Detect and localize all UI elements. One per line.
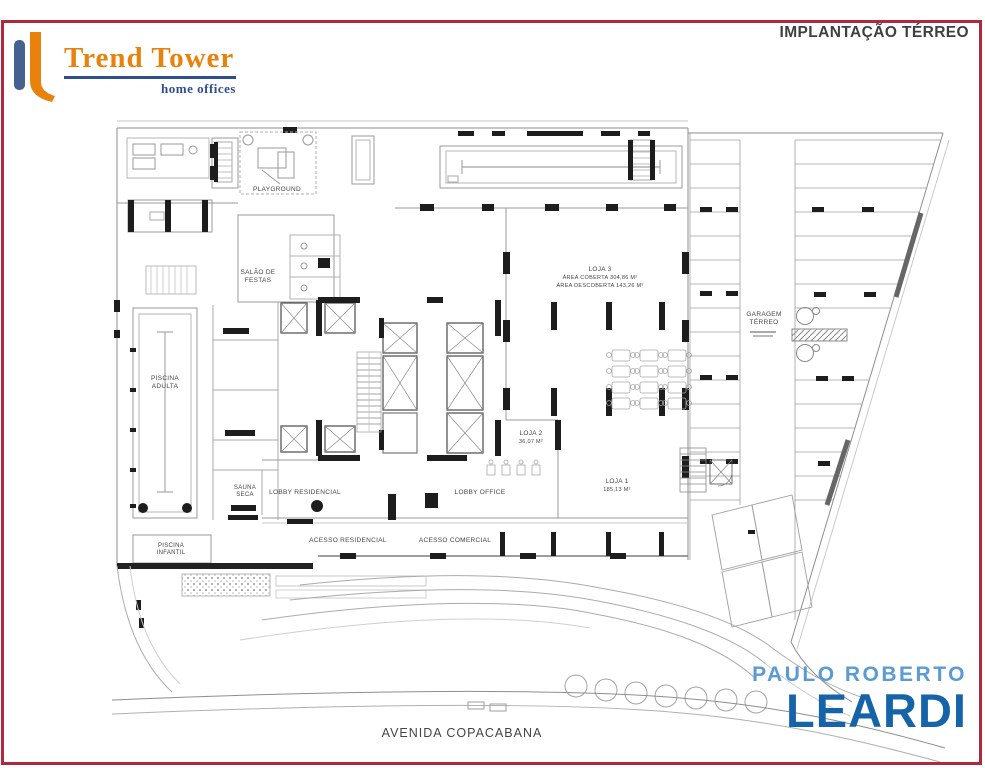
elevator-box [325,426,355,452]
playground-area [240,132,316,194]
amenity-terrace-walls [210,127,297,182]
elevator-box [383,323,417,353]
label-piscina-adulta-2: ADULTA [152,383,179,390]
garage-ramp [750,213,921,505]
label-acesso-comercial: ACESSO COMERCIAL [419,537,491,544]
label-loja3-2: ÁREA COBERTA 304,86 M² [563,274,638,281]
trend-tower-logo-icon [12,30,58,102]
label-street: AVENIDA COPACABANA [382,726,543,740]
broker-name-top: PAULO ROBERTO [752,664,967,685]
loja3-tables [607,350,692,409]
logo-rule [64,76,236,79]
trend-tower-logo: Trend Tower home offices [12,30,236,102]
label-sauna-2: SECA [236,492,254,498]
piscina-infantil [133,535,211,563]
label-loja3-1: LOJA 3 [588,266,611,273]
elevator-box [447,413,483,453]
label-piscina-infantil-2: INFANTIL [157,550,186,556]
label-sauna-1: SAUNA [234,485,256,491]
label-salao-2: FESTAS [245,277,272,284]
page-title: IMPLANTAÇÃO TÉRREO [780,24,969,42]
amenity-terrace [117,138,238,203]
logo-brand-text: Trend Tower [64,44,236,73]
label-loja3-3: ÁREA DESCOBERTA 143,26 M² [556,282,643,289]
floor-plan-drawing: PLAYGROUND SALÃO DE FESTAS PISCINA ADULT… [0,0,985,768]
commercial-columns [287,204,689,559]
elevator-box [325,303,355,333]
label-acesso-residencial: ACESSO RESIDENCIAL [309,537,387,544]
label-loja1-1: LOJA 1 [605,478,628,485]
parking-columns [700,207,876,466]
label-garagem-1: GARAGEM [746,311,781,318]
label-loja2-2: 36,07 M² [519,439,543,445]
lobby-chairs [487,460,540,475]
elevator-box [447,323,483,353]
elevator-box [281,426,307,452]
elevator-box [383,356,417,410]
core-stairs [357,352,381,432]
label-garagem-2: TÉRREO [750,317,779,326]
label-piscina-adulta-1: PISCINA [151,375,179,382]
label-salao-1: SALÃO DE [241,267,276,276]
elevator-box [447,356,483,410]
elevator-box [383,413,417,453]
label-loja2-1: LOJA 2 [519,430,542,437]
label-lobby-office: LOBBY OFFICE [455,489,506,496]
piscina-adulta [133,308,197,518]
label-lobby-residencial: LOBBY RESIDENCIAL [269,489,341,496]
salao-festas-room [146,215,340,302]
broker-brand: PAULO ROBERTO LEARDI [752,664,967,734]
broker-name-main: LEARDI [752,687,967,734]
label-playground: PLAYGROUND [253,186,301,193]
logo-tagline: home offices [64,81,236,97]
top-columns [458,131,655,180]
pergola [128,200,212,232]
label-loja1-2: 185,13 M² [603,487,630,493]
elevator-box [281,303,307,333]
diagonal-parking [712,495,812,627]
label-piscina-infantil-1: PISCINA [158,543,184,549]
page: PLAYGROUND SALÃO DE FESTAS PISCINA ADULT… [0,0,985,768]
